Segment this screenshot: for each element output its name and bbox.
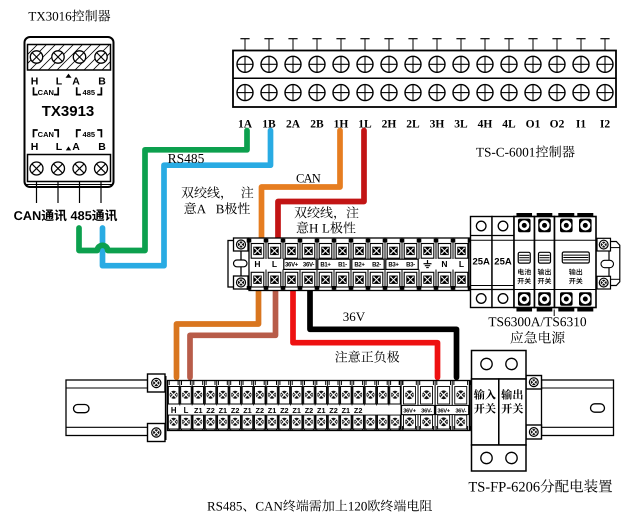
svg-text:O1: O1 xyxy=(526,118,541,130)
svg-text:B1-: B1- xyxy=(338,263,347,269)
svg-text:1B: 1B xyxy=(262,118,276,130)
svg-text:CAN: CAN xyxy=(296,171,321,185)
svg-text:Z1: Z1 xyxy=(317,406,326,415)
svg-text:H: H xyxy=(31,75,39,87)
svg-text:25A: 25A xyxy=(494,257,512,268)
svg-text:B: B xyxy=(98,141,106,153)
svg-text:Z1: Z1 xyxy=(219,406,228,415)
svg-text:Z2: Z2 xyxy=(354,406,363,415)
svg-text:L: L xyxy=(184,406,189,415)
svg-text:25A: 25A xyxy=(472,257,490,268)
svg-text:Z1: Z1 xyxy=(292,406,301,415)
svg-text:L: L xyxy=(56,75,63,87)
svg-text:H: H xyxy=(31,141,39,153)
svg-text:L: L xyxy=(272,259,277,269)
svg-text:CAN: CAN xyxy=(38,130,54,139)
svg-text:36V-: 36V- xyxy=(455,408,466,414)
svg-text:36V+: 36V+ xyxy=(403,408,416,414)
svg-text:Z1: Z1 xyxy=(194,406,203,415)
svg-text:36V+: 36V+ xyxy=(285,263,299,269)
svg-text:485: 485 xyxy=(83,88,96,97)
svg-text:4H: 4H xyxy=(478,118,493,130)
svg-text:36V-: 36V- xyxy=(303,263,314,269)
svg-text:Z1: Z1 xyxy=(342,406,351,415)
svg-text:TX3913: TX3913 xyxy=(42,103,95,120)
svg-text:485: 485 xyxy=(83,130,96,139)
svg-text:4L: 4L xyxy=(502,118,516,130)
svg-text:Z2: Z2 xyxy=(255,406,264,415)
svg-text:36V-: 36V- xyxy=(421,408,432,414)
svg-text:2L: 2L xyxy=(406,118,420,130)
svg-text:N: N xyxy=(441,259,447,269)
svg-text:B3-: B3- xyxy=(406,263,415,269)
svg-text:I1: I1 xyxy=(576,118,586,130)
svg-text:H: H xyxy=(171,406,177,415)
svg-text:2A: 2A xyxy=(286,118,301,130)
svg-text:RS485: RS485 xyxy=(168,151,205,166)
svg-text:I2: I2 xyxy=(600,118,610,130)
svg-text:B3+: B3+ xyxy=(388,263,399,269)
svg-text:1H: 1H xyxy=(334,118,349,130)
svg-text:O2: O2 xyxy=(550,118,565,130)
svg-text:2H: 2H xyxy=(382,118,397,130)
svg-text:Z2: Z2 xyxy=(329,406,338,415)
svg-text:L: L xyxy=(459,259,464,269)
svg-text:36V: 36V xyxy=(343,309,366,324)
svg-text:Z2: Z2 xyxy=(231,406,240,415)
svg-text:B2-: B2- xyxy=(372,263,381,269)
svg-text:Z1: Z1 xyxy=(243,406,252,415)
svg-text:Z2: Z2 xyxy=(206,406,215,415)
svg-text:A: A xyxy=(72,75,80,87)
svg-text:1A: 1A xyxy=(238,118,253,130)
svg-text:H: H xyxy=(254,259,260,269)
svg-text:A: A xyxy=(72,141,80,153)
svg-text:3H: 3H xyxy=(430,118,445,130)
svg-text:Z1: Z1 xyxy=(268,406,277,415)
svg-text:2B: 2B xyxy=(310,118,324,130)
svg-text:B: B xyxy=(98,75,106,87)
svg-text:Z2: Z2 xyxy=(280,406,289,415)
svg-text:B1+: B1+ xyxy=(320,263,331,269)
svg-text:L: L xyxy=(56,141,63,153)
svg-text:36V+: 36V+ xyxy=(437,408,450,414)
svg-text:CAN: CAN xyxy=(38,88,54,97)
svg-text:Z2: Z2 xyxy=(305,406,314,415)
svg-text:1L: 1L xyxy=(358,118,372,130)
svg-text:3L: 3L xyxy=(454,118,468,130)
svg-text:B2+: B2+ xyxy=(354,263,365,269)
